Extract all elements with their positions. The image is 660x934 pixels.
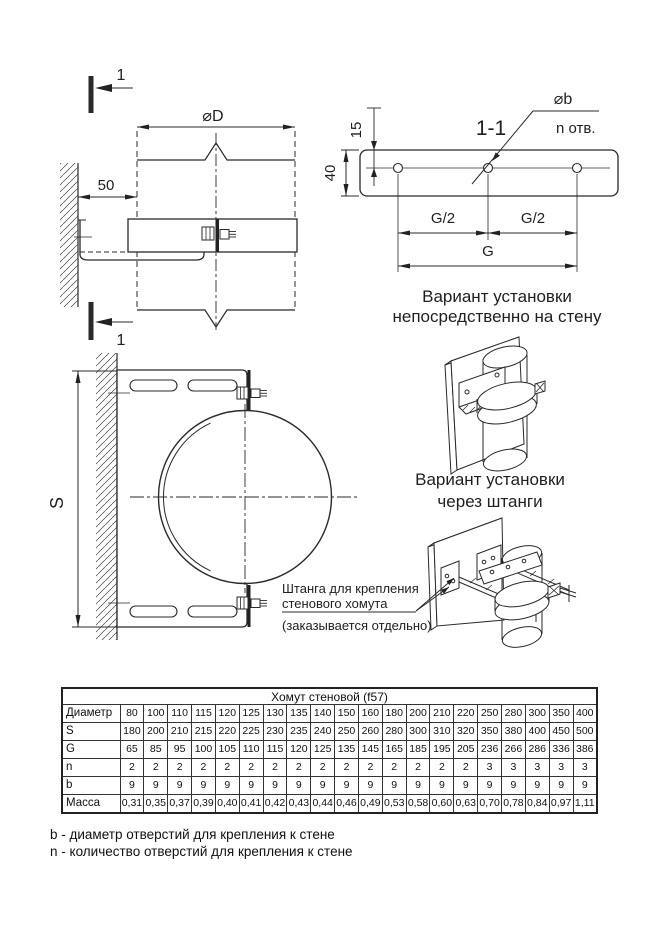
half-span-left-label: G/2 <box>431 210 455 227</box>
table-cell: 0,97 <box>549 795 573 814</box>
table-cell: 3 <box>549 759 573 777</box>
section-mark-label-top: 1 <box>117 67 126 84</box>
table-cell: 195 <box>430 741 454 759</box>
table-row: S180200210215220225230235240250260280300… <box>62 723 597 741</box>
table-cell: 0,58 <box>406 795 430 814</box>
table-cell: 9 <box>525 777 549 795</box>
table-cell: 215 <box>192 723 216 741</box>
table-cell: 9 <box>549 777 573 795</box>
table-cell: 9 <box>573 777 597 795</box>
wall-hatch <box>60 163 78 307</box>
table-cell: 0,43 <box>287 795 311 814</box>
table-cell: 240 <box>311 723 335 741</box>
table-cell: 140 <box>311 705 335 723</box>
table-cell: 125 <box>311 741 335 759</box>
table-cell: 210 <box>168 723 192 741</box>
technical-drawing: 1 1 ⌀D 50 1-1 ⌀b n отв. 15 40 G/2 G <box>0 0 660 682</box>
table-cell: 180 <box>120 723 144 741</box>
table-cell: 300 <box>525 705 549 723</box>
table-cell: 250 <box>335 723 359 741</box>
table-cell: 9 <box>382 777 406 795</box>
table-cell: 250 <box>478 705 502 723</box>
table-cell: 9 <box>263 777 287 795</box>
rod-annotation-line1: Штанга для крепления <box>282 581 419 596</box>
table-body: Диаметр801001101151201251301351401501601… <box>62 705 597 814</box>
caption-rods-mount-line2: через штанги <box>437 492 542 511</box>
table-cell: 2 <box>120 759 144 777</box>
table-cell: 3 <box>502 759 526 777</box>
table-cell: 400 <box>573 705 597 723</box>
table-cell: 9 <box>144 777 168 795</box>
table-cell: 115 <box>192 705 216 723</box>
table-cell: 9 <box>478 777 502 795</box>
height-dim-label: S <box>47 497 67 509</box>
edge-to-hole-dim-label: 15 <box>348 122 365 139</box>
table-cell: 130 <box>263 705 287 723</box>
table-cell: 220 <box>454 705 478 723</box>
table-cell: 95 <box>168 741 192 759</box>
span-dim-label: G <box>482 243 494 260</box>
table-cell: 85 <box>144 741 168 759</box>
section-cut-mark-bottom <box>91 302 133 340</box>
table-cell: 2 <box>335 759 359 777</box>
table-cell: 185 <box>406 741 430 759</box>
table-cell: 0,60 <box>430 795 454 814</box>
table-cell: 145 <box>358 741 382 759</box>
table-cell: 115 <box>263 741 287 759</box>
table-cell: 266 <box>502 741 526 759</box>
table-cell: 0,49 <box>358 795 382 814</box>
drawing-sheet: 1 1 ⌀D 50 1-1 ⌀b n отв. 15 40 G/2 G <box>0 0 660 934</box>
table-cell: 9 <box>358 777 382 795</box>
section-view-title: 1-1 <box>476 117 506 140</box>
table-cell: 105 <box>215 741 239 759</box>
wall-offset-dim-label: 50 <box>98 177 115 194</box>
table-cell: 135 <box>287 705 311 723</box>
table-cell: 9 <box>311 777 335 795</box>
table-cell: 230 <box>263 723 287 741</box>
table-cell: 0,78 <box>502 795 526 814</box>
table-cell: 200 <box>144 723 168 741</box>
holes-count-label: n отв. <box>556 120 596 137</box>
table-cell: 100 <box>192 741 216 759</box>
table-cell: 2 <box>239 759 263 777</box>
diameter-dim-label: ⌀D <box>202 108 223 125</box>
table-cell: 9 <box>406 777 430 795</box>
table-cell: 9 <box>287 777 311 795</box>
table-row: Диаметр801001101151201251301351401501601… <box>62 705 597 723</box>
rods-mount-illustration <box>428 518 576 651</box>
direct-mount-illustration <box>445 337 545 475</box>
table-cell: 120 <box>215 705 239 723</box>
table-cell: 220 <box>215 723 239 741</box>
section-mark-label-bottom: 1 <box>117 332 126 349</box>
table-cell: 3 <box>573 759 597 777</box>
table-cell: 160 <box>358 705 382 723</box>
table-cell: 260 <box>358 723 382 741</box>
table-row: G658595100105110115120125135145165185195… <box>62 741 597 759</box>
table-cell: 2 <box>168 759 192 777</box>
row-label: Диаметр <box>62 705 120 723</box>
bolt-icon <box>237 387 267 399</box>
table-cell: 3 <box>525 759 549 777</box>
table-cell: 0,63 <box>454 795 478 814</box>
table-cell: 380 <box>502 723 526 741</box>
table-cell: 0,31 <box>120 795 144 814</box>
table-cell: 0,44 <box>311 795 335 814</box>
table-cell: 9 <box>120 777 144 795</box>
table-cell: 2 <box>311 759 335 777</box>
table-cell: 120 <box>287 741 311 759</box>
table-cell: 236 <box>478 741 502 759</box>
table-cell: 3 <box>478 759 502 777</box>
table-cell: 9 <box>239 777 263 795</box>
table-cell: 2 <box>287 759 311 777</box>
table-cell: 0,40 <box>215 795 239 814</box>
table-row: b99999999999999999999 <box>62 777 597 795</box>
table-cell: 205 <box>454 741 478 759</box>
table-row: Масса0,310,350,370,390,400,410,420,430,4… <box>62 795 597 814</box>
table-cell: 9 <box>168 777 192 795</box>
table-cell: 500 <box>573 723 597 741</box>
half-span-right-label: G/2 <box>521 210 545 227</box>
table-cell: 2 <box>144 759 168 777</box>
table-cell: 336 <box>549 741 573 759</box>
strip-height-dim-label: 40 <box>322 165 339 182</box>
table-cell: 225 <box>239 723 263 741</box>
table-cell: 235 <box>287 723 311 741</box>
table-cell: 400 <box>525 723 549 741</box>
table-row: n22222222222222233333 <box>62 759 597 777</box>
table-cell: 9 <box>335 777 359 795</box>
table-cell: 286 <box>525 741 549 759</box>
table-cell: 0,70 <box>478 795 502 814</box>
table-cell: 0,84 <box>525 795 549 814</box>
row-label: G <box>62 741 120 759</box>
row-label: b <box>62 777 120 795</box>
table-cell: 320 <box>454 723 478 741</box>
table-cell: 280 <box>382 723 406 741</box>
table-cell: 180 <box>382 705 406 723</box>
rod-annotation-note: (заказывается отдельно) <box>282 618 432 633</box>
row-label: Масса <box>62 795 120 814</box>
table-cell: 2 <box>263 759 287 777</box>
table-cell: 0,53 <box>382 795 406 814</box>
table-title: Хомут стеновой (f57) <box>62 688 597 705</box>
table-cell: 2 <box>215 759 239 777</box>
table-cell: 0,42 <box>263 795 287 814</box>
side-view-drawing <box>60 76 297 340</box>
table-cell: 150 <box>335 705 359 723</box>
table-cell: 0,41 <box>239 795 263 814</box>
spec-table: Хомут стеновой (f57) Диаметр801001101151… <box>61 687 598 814</box>
table-cell: 200 <box>406 705 430 723</box>
table-cell: 210 <box>430 705 454 723</box>
table-cell: 386 <box>573 741 597 759</box>
caption-direct-mount-line2: непосредственно на стену <box>393 307 602 326</box>
bolt-icon <box>237 597 267 609</box>
table-cell: 450 <box>549 723 573 741</box>
table-cell: 2 <box>430 759 454 777</box>
table-cell: 9 <box>430 777 454 795</box>
table-cell: 300 <box>406 723 430 741</box>
table-cell: 0,35 <box>144 795 168 814</box>
section-cut-mark-top <box>91 76 133 113</box>
row-label: n <box>62 759 120 777</box>
table-cell: 110 <box>239 741 263 759</box>
table-cell: 2 <box>382 759 406 777</box>
note-b: b - диаметр отверстий для крепления к ст… <box>50 826 353 843</box>
table-cell: 0,39 <box>192 795 216 814</box>
table-cell: 135 <box>335 741 359 759</box>
table-cell: 2 <box>406 759 430 777</box>
row-label: S <box>62 723 120 741</box>
table-cell: 0,37 <box>168 795 192 814</box>
table-cell: 350 <box>478 723 502 741</box>
table-cell: 80 <box>120 705 144 723</box>
table-cell: 280 <box>502 705 526 723</box>
table-cell: 2 <box>358 759 382 777</box>
table-cell: 9 <box>502 777 526 795</box>
table-cell: 2 <box>192 759 216 777</box>
rod-annotation-line2: стенового хомута <box>282 596 388 611</box>
caption-rods-mount-line1: Вариант установки <box>415 470 565 489</box>
note-n: n - количество отверстий для крепления к… <box>50 843 353 860</box>
table-cell: 125 <box>239 705 263 723</box>
footnotes: b - диаметр отверстий для крепления к ст… <box>50 826 353 860</box>
table-cell: 9 <box>215 777 239 795</box>
caption-direct-mount-line1: Вариант установки <box>422 287 572 306</box>
table-cell: 350 <box>549 705 573 723</box>
table-cell: 9 <box>454 777 478 795</box>
table-cell: 65 <box>120 741 144 759</box>
table-cell: 1,11 <box>573 795 597 814</box>
table-cell: 100 <box>144 705 168 723</box>
table-cell: 9 <box>192 777 216 795</box>
table-cell: 110 <box>168 705 192 723</box>
table-cell: 0,46 <box>335 795 359 814</box>
table-cell: 2 <box>454 759 478 777</box>
table-cell: 165 <box>382 741 406 759</box>
table-cell: 310 <box>430 723 454 741</box>
hole-diameter-label: ⌀b <box>554 91 573 108</box>
